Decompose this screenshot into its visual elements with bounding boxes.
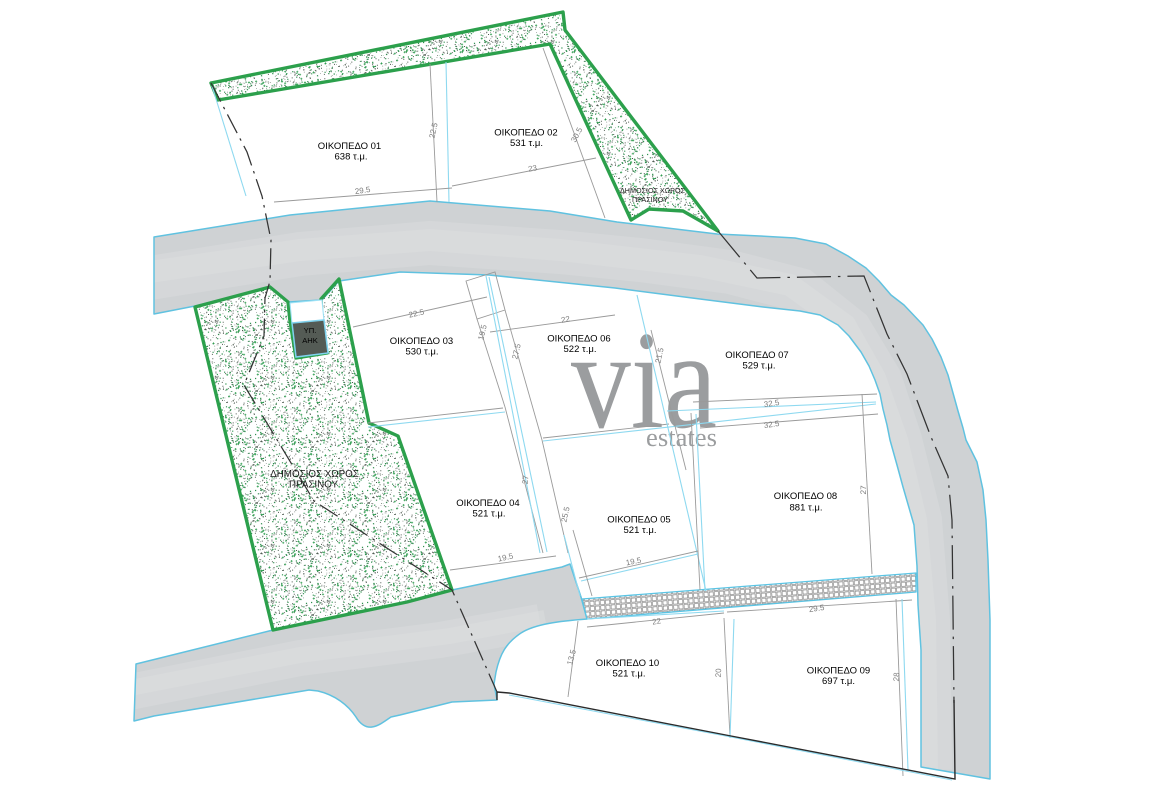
svg-text:522 τ.μ.: 522 τ.μ. <box>564 344 597 355</box>
svg-text:28: 28 <box>892 672 901 682</box>
svg-text:ΠΡΑΣΙΝΟΥ: ΠΡΑΣΙΝΟΥ <box>632 195 668 204</box>
svg-text:521 τ.μ.: 521 τ.μ. <box>473 509 506 520</box>
svg-text:ΑΗΚ: ΑΗΚ <box>302 336 318 345</box>
svg-text:ΠΡΑΣΙΝΟΥ: ΠΡΑΣΙΝΟΥ <box>289 480 339 491</box>
svg-text:ΟΙΚΟΠΕΔΟ 03: ΟΙΚΟΠΕΔΟ 03 <box>390 336 453 347</box>
svg-text:27: 27 <box>521 474 531 484</box>
svg-text:20: 20 <box>714 668 723 678</box>
svg-text:521 τ.μ.: 521 τ.μ. <box>613 668 646 679</box>
svg-text:ΔΗΜΟΣΙΟΣ ΧΩΡΟΣ: ΔΗΜΟΣΙΟΣ ΧΩΡΟΣ <box>620 186 686 195</box>
svg-text:521 τ.μ.: 521 τ.μ. <box>624 525 657 536</box>
svg-text:ΟΙΚΟΠΕΔΟ 09: ΟΙΚΟΠΕΔΟ 09 <box>807 666 870 677</box>
svg-text:638 τ.μ.: 638 τ.μ. <box>335 151 368 162</box>
svg-text:ΟΙΚΟΠΕΔΟ 04: ΟΙΚΟΠΕΔΟ 04 <box>456 498 519 509</box>
svg-text:531 τ.μ.: 531 τ.μ. <box>510 138 543 149</box>
svg-text:530 τ.μ.: 530 τ.μ. <box>406 346 439 357</box>
svg-text:697 τ.μ.: 697 τ.μ. <box>822 676 855 687</box>
svg-text:ΟΙΚΟΠΕΔΟ 05: ΟΙΚΟΠΕΔΟ 05 <box>607 515 670 526</box>
svg-text:ΟΙΚΟΠΕΔΟ 06: ΟΙΚΟΠΕΔΟ 06 <box>547 334 610 345</box>
svg-text:ΔΗΜΟΣΙΟΣ ΧΩΡΟΣ: ΔΗΜΟΣΙΟΣ ΧΩΡΟΣ <box>270 469 359 480</box>
svg-text:27: 27 <box>859 485 868 495</box>
svg-text:ΟΙΚΟΠΕΔΟ 02: ΟΙΚΟΠΕΔΟ 02 <box>494 128 557 139</box>
svg-text:ΟΙΚΟΠΕΔΟ 08: ΟΙΚΟΠΕΔΟ 08 <box>774 491 837 502</box>
svg-text:529 τ.μ.: 529 τ.μ. <box>743 361 776 372</box>
svg-text:ΥΠ.: ΥΠ. <box>304 326 317 335</box>
svg-text:ΟΙΚΟΠΕΔΟ 07: ΟΙΚΟΠΕΔΟ 07 <box>725 350 788 361</box>
svg-text:881 τ.μ.: 881 τ.μ. <box>790 503 823 514</box>
